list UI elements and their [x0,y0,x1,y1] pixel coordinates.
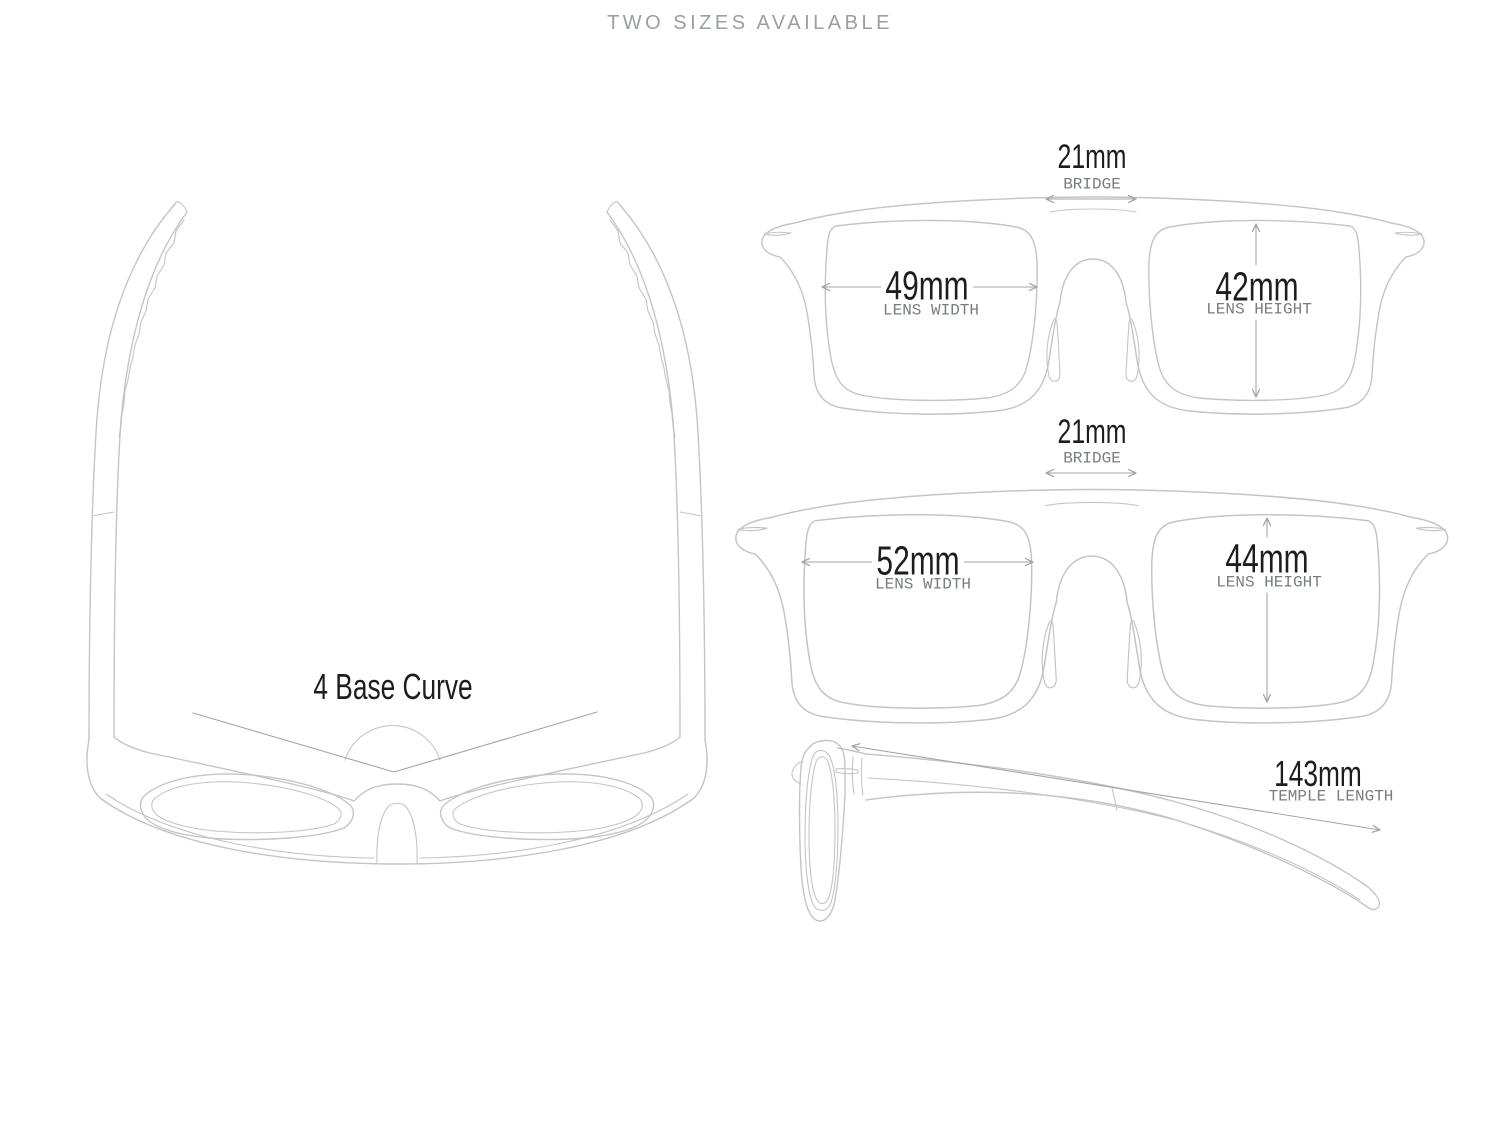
size-one-lens-height-label: LENS HEIGHT [1202,301,1316,320]
top-view-diagram [87,202,707,864]
front-view-size-two [736,490,1448,723]
size-two-lens-height-label: LENS HEIGHT [1212,574,1326,593]
base-curve-dome [345,726,440,760]
size-one-bridge-value: 21mm [1039,140,1145,176]
side-hinge-joint [852,757,863,795]
size-one-lens-width-label: LENS WIDTH [879,302,983,321]
front-view-size-one [762,197,1424,414]
size-one-bridge-label: BRIDGE [1059,176,1125,195]
front-brow-edge [114,737,680,801]
base-curve-pointer-lines [193,712,597,772]
side-lens-outer [805,750,838,910]
nose-cutout-arch [388,803,406,807]
size-guide-diagram: TWO SIZES AVAILABLE 4 Base Curve 21mm BR… [0,0,1500,1125]
temple-length-label: TEMPLE LENGTH [1265,788,1398,807]
size-two-bridge-label: BRIDGE [1059,450,1125,469]
page-title: TWO SIZES AVAILABLE [0,12,1500,35]
size-two-lens-width-label: LENS WIDTH [871,576,975,595]
side-hinge-slit [836,769,858,774]
size-two-bridge-value: 21mm [1039,415,1145,451]
side-lens-inner [809,757,835,904]
base-curve-label: 4 Base Curve [278,668,508,706]
